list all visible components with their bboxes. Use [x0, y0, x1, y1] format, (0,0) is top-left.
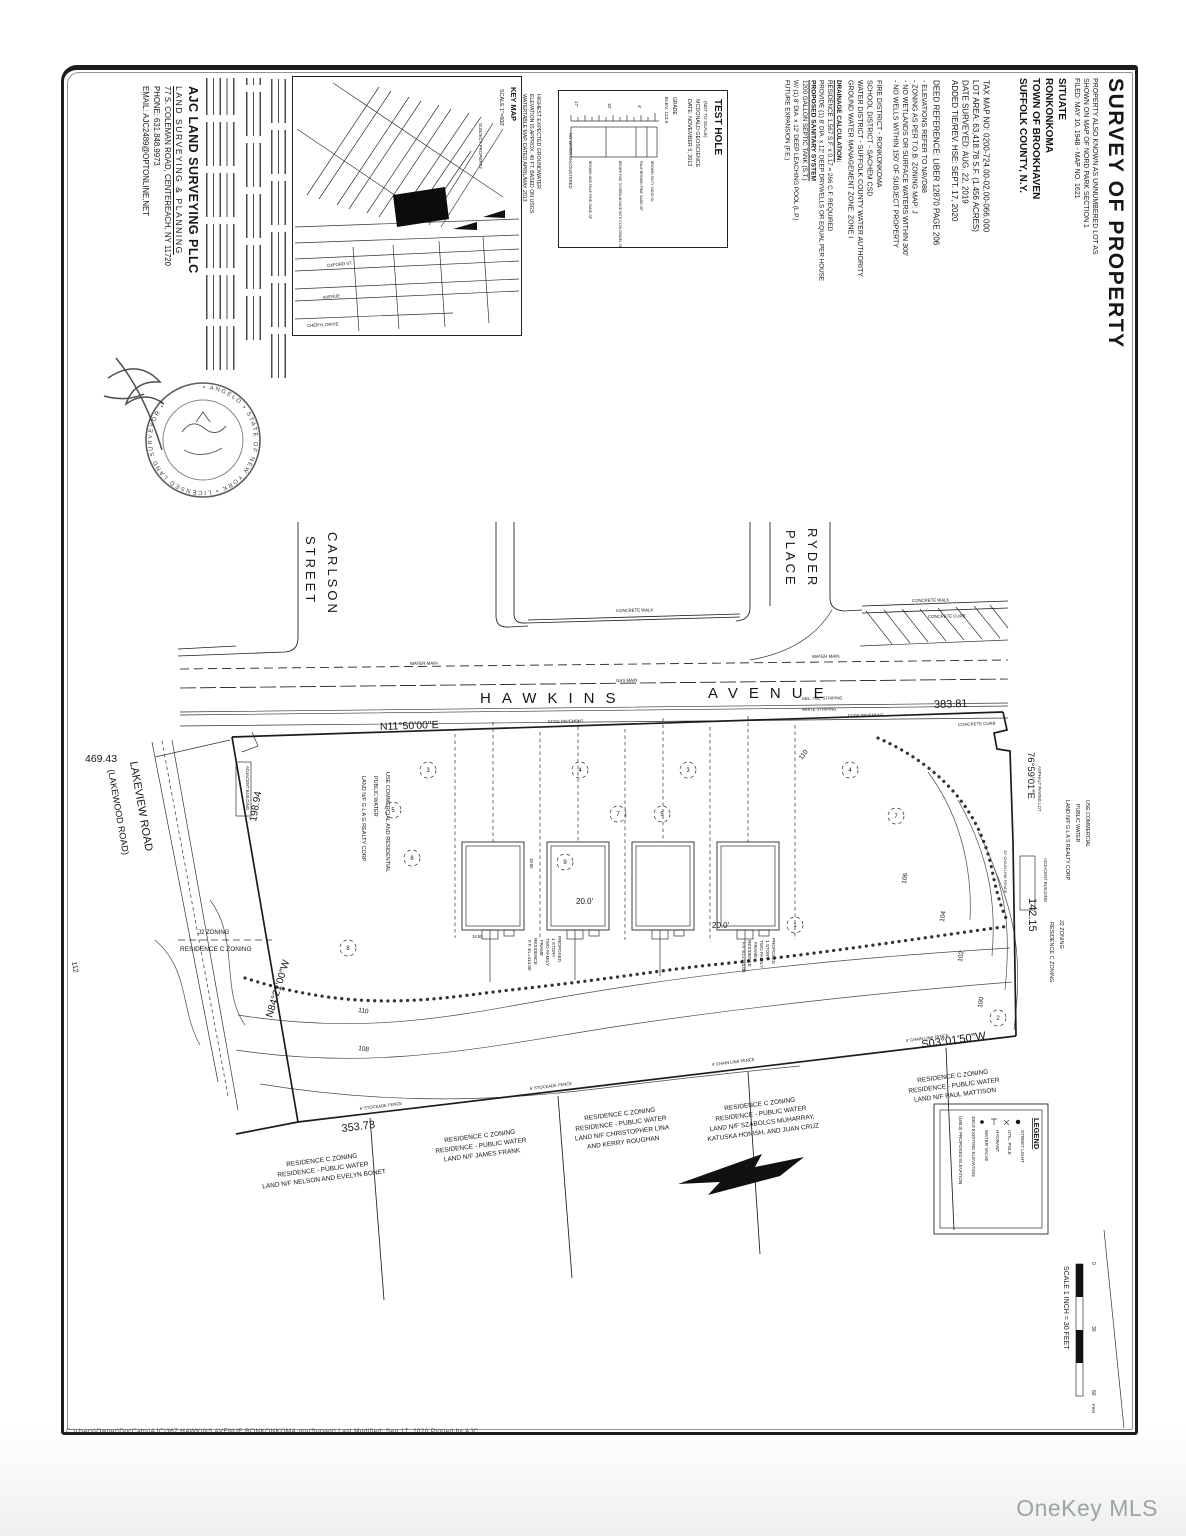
neighbor-bonet: RESIDENCE C ZONING RESIDENCE - PUBLIC WA…	[260, 1149, 387, 1190]
use-left-3: LAND N/F G L A G REALTY CORP	[360, 776, 366, 862]
sanitary-pool: W/ (1) 8' DIA. x 12' DEEP LEACHING POOL …	[791, 80, 800, 490]
drainage-block: DRAINAGE CALCULATION: RESIDENCE 1,567 S.…	[816, 80, 842, 490]
marker: 8	[346, 946, 350, 952]
title-aka-2: SHOWN ON MAP OF NORD PARK SECTION 1	[1081, 78, 1090, 498]
marker: 1	[793, 923, 797, 929]
use-left-2: PUBLIC WATER	[372, 776, 378, 817]
chain-fence-1: 4' CHAIN LINK FENCE	[712, 1057, 756, 1067]
adjacent-building-label-right: ADJACENT BUILDING	[1043, 858, 1048, 903]
house-dim-14: 14.50	[472, 934, 483, 939]
depth-10: 10'	[607, 103, 612, 109]
test-hole-text: TEST HOLE (NOT TO SCALE) MCDONALD GEOSCI…	[663, 97, 723, 168]
scale-label: SCALE 1 INCH = 30 FEET	[1062, 1266, 1069, 1350]
town-label: TOWN OF BROOKHAVEN	[1029, 78, 1042, 498]
water-main-label-1: WATER MAIN	[410, 661, 438, 666]
use-right-1: USE COMMERCIAL	[1084, 800, 1090, 847]
house2-l5: RESIDENCE	[747, 940, 752, 967]
layer-4: BROWN AND PALE FINE SAND SP	[588, 161, 592, 220]
revision-note: ADDED TIE/REV. HSE: SEPT. 17, 2020	[949, 80, 960, 510]
fire-district: FIRE DISTRICT - RONKONKOMA	[874, 80, 884, 500]
street-name-lakeview: LAKEVIEW ROAD	[127, 760, 155, 852]
neighbor-frank: RESIDENCE C ZONING RESIDENCE - PUBLIC WA…	[434, 1127, 529, 1164]
street-light-icon	[1016, 1120, 1020, 1124]
general-notes-block: - ELEVATIONS REFER TO NAVD88 - ZONING AS…	[890, 80, 928, 500]
surveyor-signature	[104, 358, 164, 450]
test-hole-box: TEST HOLE (NOT TO SCALE) MCDONALD GEOSCI…	[558, 90, 728, 248]
house2-l3: TWO FAMILY	[759, 940, 764, 968]
house-3	[632, 842, 694, 939]
neighbor-mattison: RESIDENCE C ZONING RESIDENCE - PUBLIC WA…	[907, 1067, 1002, 1104]
hydrant-icon	[991, 1119, 997, 1125]
hamlet-label: RONKONKOMA	[1042, 78, 1055, 498]
property-boundary	[232, 712, 1016, 1134]
legend-proposed-elev: (100.0) PROPOSED ELEVATION	[958, 1116, 963, 1184]
street-name-ryder: RYDER	[805, 528, 820, 588]
note-wells: - NO WELLS WITHIN 150' OF SUBJECT PROPER…	[890, 80, 900, 500]
scale-tick-60: 60	[1090, 1390, 1096, 1396]
street-name-carlson: CARLSON	[325, 532, 340, 616]
scale-tick-30: 30	[1090, 1326, 1096, 1332]
concrete-curb-label-1: CONCRETE CURB	[928, 613, 966, 619]
street-name-hawkins: HAWKINS	[480, 690, 626, 707]
groundwater-note: HIGHEST EXPECTED GROUNDWATER ELEVATION I…	[520, 94, 541, 344]
key-map-title: KEY MAP	[509, 87, 518, 121]
layer-3: BROWN FINE TO MEDIUM SAND WITH 5-10% GRA…	[618, 161, 622, 247]
scanned-survey-page: { "watermark": "OneKey MLS", "titleblock…	[0, 0, 1186, 1536]
zoning-labels: J2 ZONING RESIDENCE C ZONING J2 ZONING R…	[178, 920, 1064, 983]
fine-print-notes-2	[246, 78, 266, 340]
fence-labels: 6' STOCKADE FENCE 6' STOCKADE FENCE 4' C…	[360, 1033, 950, 1111]
house2-l2: 1 STORY	[765, 940, 770, 960]
legend-existing-elev: 100.0 EXISTING ELEVATION	[971, 1116, 976, 1177]
concrete-walk-label-1: CONCRETE WALK	[616, 607, 654, 613]
house1-l3: TWO FAMILY	[545, 938, 550, 966]
neighbor-division-lines	[370, 1048, 954, 1300]
dim-20-label-2: 20.0'	[712, 921, 730, 930]
house1-l4: FRAME	[539, 940, 544, 956]
street-name-carlson-street: STREET	[303, 536, 318, 605]
marker: 3	[426, 768, 430, 774]
depth-4: 4'	[637, 105, 642, 108]
scale-unit: Feet	[1091, 1404, 1096, 1414]
layer-1: BROWN SILTY SAND OL	[650, 161, 654, 202]
house-dim-18: 18.00	[529, 858, 534, 869]
test-hole-date: DATE: NOVEMBER 5, 2013	[686, 99, 692, 166]
gw-note-1: HIGHEST EXPECTED GROUNDWATER	[534, 94, 541, 344]
house1-l2: 1 STORY	[551, 938, 556, 958]
bearing-north: N11°50'00"E	[380, 719, 439, 733]
marker: 7	[616, 812, 620, 818]
road-lines	[178, 522, 1008, 660]
street-name-place: PLACE	[783, 530, 798, 588]
plot-file-footer: C:\Users\Owner\DocCabs\AJC\367 HAWKINS A…	[66, 1428, 478, 1435]
contour-lines	[155, 772, 1018, 1099]
marker: 8	[410, 856, 414, 862]
legend-util-pole: UTIL. POLE	[1007, 1130, 1012, 1155]
dimension-north: 383.81	[934, 698, 968, 711]
util-pole-icon	[1004, 1120, 1009, 1125]
use-right-2: PUBLIC WATER	[1074, 804, 1080, 843]
subject-pointer-line	[445, 151, 471, 189]
clearing-limit-line	[245, 738, 1010, 1001]
marker: 9	[563, 860, 567, 866]
house1-l5: RESIDENCE	[533, 938, 538, 965]
sanitary-block: PROPOSED SANITARY SYSTEM 1200 GALLON SEP…	[782, 80, 817, 490]
key-map-scale: SCALE 1"=600'	[498, 89, 504, 126]
marker: 4	[848, 768, 852, 774]
bearing-southeast: S03°01'50"W	[921, 1030, 987, 1051]
house-label-block-1: PROPOSED 1 STORY TWO FAMILY FRAME RESIDE…	[527, 936, 562, 971]
legend-water-valve: WATER VALVE	[984, 1130, 989, 1161]
house1-l1: PROPOSED	[557, 936, 562, 963]
use-right-3: LAND N/F G L A S REALTY CORP	[1064, 800, 1070, 881]
house2-l4: FRAME	[753, 942, 758, 958]
north-arrow-icon	[678, 1154, 804, 1195]
fine-print-notes-1	[206, 78, 240, 370]
street-name-lakewood: (LAKEWOOD ROAD)	[106, 769, 131, 856]
test-hole-elev: ELEV. 113.0	[663, 97, 669, 123]
note-zoning: - ZONING AS PER T.O.B. ZONING MAP: J	[909, 80, 919, 500]
deed-reference: DEED REFERENCE: LIBER 12870 PAGE 206	[930, 80, 941, 510]
house-1	[462, 842, 524, 939]
circled-markers: 3 5 8 4 7 9 3 5 4 7 8 1 2	[340, 762, 1006, 1026]
use-left-1: USE COMMERCIAL AND RESIDENTIAL	[384, 772, 390, 872]
water-valve-icon	[980, 1120, 984, 1124]
proposed-houses	[462, 842, 779, 982]
key-map-street-cheryl: CHERYL DRIVE	[307, 321, 339, 328]
drainage-header: DRAINAGE CALCULATION:	[833, 80, 842, 490]
boundary-break-symbol	[242, 732, 258, 752]
house-2	[547, 842, 609, 939]
zoning-resc-right: RESIDENCE C ZONING	[1048, 922, 1054, 983]
dimension-tie: 469.43	[85, 753, 117, 765]
contour-100: 100	[977, 996, 985, 1008]
lot-lines	[455, 716, 795, 942]
tax-map-no: TAX MAP NO: 0200-724.00-02.00-066.000	[980, 80, 991, 510]
striping-label: DBL. YEL. STRIPING	[802, 695, 843, 701]
house1-l6: F.F. EL=114.00	[527, 940, 532, 971]
chain-link-fence-10-label: 10' CHAIN LINK FENCE	[1003, 850, 1008, 894]
water-main-line	[180, 660, 1008, 669]
scale-bar: SCALE 1 INCH = 30 FEET 0 30 60 Feet	[1062, 1262, 1096, 1414]
white-striping-label: WHITE STRIPING	[802, 706, 837, 712]
test-hole-layers: BROWN SILTY SAND OL PALE BROWN FINE SAND…	[568, 133, 654, 247]
house2-l6: F.F. EL=114.00	[741, 942, 746, 973]
test-hole-ruler	[571, 113, 659, 157]
sanitary-expansion: FUTURE EXPANSION (F.E.)	[782, 80, 791, 490]
no-water-note: NO WATER ENCOUNTERED	[568, 133, 573, 189]
sanitary-header: PROPOSED SANITARY SYSTEM	[808, 80, 817, 490]
test-hole-diagram: TEST HOLE (NOT TO SCALE) MCDONALD GEOSCI…	[559, 91, 727, 247]
test-hole-firm: MCDONALD GEOSCIENCE	[694, 99, 700, 168]
gas-main-line	[180, 679, 1008, 688]
contour-110b: 110	[798, 748, 810, 761]
test-hole-nts: (NOT TO SCALE)	[703, 101, 708, 138]
concrete-walk-label-2: CONCRETE WALK	[912, 597, 950, 603]
contour-labels: 112 110 108 110 106 104 102 100	[70, 748, 986, 1053]
scale-tick-0: 0	[1090, 1262, 1096, 1265]
bearing-dimension-labels: N11°50'00"E 383.81 469.43 76°59'01"E 142…	[85, 698, 1038, 1135]
districts-block: FIRE DISTRICT - RONKONKOMA SCHOOL DISTRI…	[845, 80, 883, 500]
tax-map-block: TAX MAP NO: 0200-724.00-02.00-066.000 LO…	[930, 80, 991, 510]
contour-106: 106	[901, 872, 909, 884]
test-hole-title: TEST HOLE	[712, 99, 723, 155]
gw-note-2: ELEVATION IS APPROX. 40 FT. BASED ON USG…	[527, 94, 534, 344]
title-aka-3: FILED: MAY 10, 1948 - MAP NO. 1621	[1072, 78, 1081, 498]
lot-area: LOT AREA: 63,418.78 S.F. (1.456 ACRES)	[970, 80, 981, 510]
zoning-j2-right: J2 ZONING	[1058, 920, 1064, 949]
county-label: SUFFOLK COUNTY, N.Y.	[1016, 78, 1029, 498]
dimension-east: 142.15	[1026, 898, 1038, 932]
adjacent-building-label-left: ADJACENT BUILDING	[245, 766, 250, 811]
sanitary-tank: 1200 GALLON SEPTIC TANK (S.T.)	[799, 80, 808, 490]
title-aka-1: PROPERTY ALSO KNOWN AS UNNUMBERED LOT AS	[1090, 78, 1099, 498]
note-elevations: - ELEVATIONS REFER TO NAVD88	[919, 80, 929, 500]
school-district: SCHOOL DISTRICT - SACHEM CSD	[864, 80, 874, 500]
test-hole-depths: 17' 10' 4'	[574, 101, 642, 109]
sheet-fold-line	[1104, 1230, 1124, 1428]
marker: 4	[578, 768, 582, 774]
marker: 2	[996, 1016, 1000, 1022]
neighbor-muharray: RESIDENCE C ZONING RESIDENCE - PUBLIC WA…	[704, 1094, 820, 1143]
key-map-north-mark-2	[483, 210, 505, 218]
marker: 7	[894, 814, 898, 820]
test-hole-grade: GRADE	[671, 97, 677, 115]
key-map-street-oxford: OXFORD ST.	[327, 260, 353, 268]
edge-pavement-label-1: EDGE PAVEMENT	[548, 718, 584, 724]
contour-102: 102	[957, 950, 965, 962]
water-main-label-2: WATER MAIN	[812, 654, 840, 659]
legend-title: LEGEND	[1032, 1118, 1041, 1150]
onekey-mls-watermark: OneKey MLS	[1016, 1495, 1158, 1522]
contour-104: 104	[939, 910, 947, 922]
marker: 5	[391, 808, 395, 814]
asphalt-lot-label: ASPHALT PAVING LOT	[1037, 766, 1042, 812]
seal-emblem	[182, 412, 226, 455]
page-background-shade	[0, 1426, 1186, 1536]
subject-property-label: SUBJECT PROPERTY	[478, 123, 483, 169]
lakeview-road-lines	[152, 740, 238, 1110]
marker: 5	[660, 812, 664, 818]
key-map: KEY MAP SCALE 1"=600' SUBJECT PROPERTY O…	[293, 77, 521, 335]
survey-title: SURVEY OF PROPERTY	[1102, 78, 1129, 498]
contour-108: 108	[358, 1045, 370, 1053]
contour-112: 112	[70, 961, 79, 973]
note-wetlands: - NO WETLANDS OR SURFACE WATERS WITHIN 3…	[900, 80, 910, 500]
key-map-north-mark-1	[453, 222, 477, 230]
date-surveyed: DATE SURVEYED: AUG. 22, 2019	[959, 80, 970, 510]
drainage-provide: PROVIDE (1) 8' DIA. x 12' DEEP DRYWELLS …	[816, 80, 825, 490]
house2-l1: PROPOSED	[771, 938, 776, 965]
fine-print-notes-3	[271, 78, 288, 378]
subject-parcel-fill	[393, 187, 449, 227]
concrete-curb-label-2: CONCRETE CURB	[958, 721, 996, 727]
key-map-box: KEY MAP SCALE 1"=600' SUBJECT PROPERTY O…	[292, 76, 522, 336]
zoning-resc-left: RESIDENCE C ZONING	[180, 946, 252, 953]
marker: 3	[686, 768, 690, 774]
situate-label: SITUATE	[1055, 78, 1068, 498]
gw-zone: GROUND WATER MANAGEMENT ZONE: ZONE I	[845, 80, 855, 500]
survey-drawing: HAWKINS AVENUE CARLSON STREET RYDER PLAC…	[60, 470, 1135, 1432]
depth-17: 17'	[574, 101, 579, 107]
legend-street-light: STREET LIGHT	[1020, 1130, 1025, 1163]
layer-2: PALE BROWN FINE SAND SP	[639, 161, 643, 211]
drainage-calc: RESIDENCE 1,567 S.F. x 0.17 = 266 C.F. R…	[825, 80, 834, 490]
gas-main-label: GAS MAIN	[616, 678, 638, 683]
contour-110: 110	[358, 1007, 370, 1015]
bearing-east: 76°59'01"E	[1025, 752, 1036, 799]
legend-hydrant: HYDRANT	[995, 1130, 1000, 1152]
title-block: SURVEY OF PROPERTY PROPERTY ALSO KNOWN A…	[1016, 78, 1129, 498]
neighbor-lina-roughan: RESIDENCE C ZONING RESIDENCE - PUBLIC WA…	[572, 1105, 671, 1152]
dim-20-label-1: 20.0'	[576, 897, 594, 906]
water-district: WATER DISTRICT - SUFFOLK COUNTY WATER AU…	[855, 80, 865, 500]
